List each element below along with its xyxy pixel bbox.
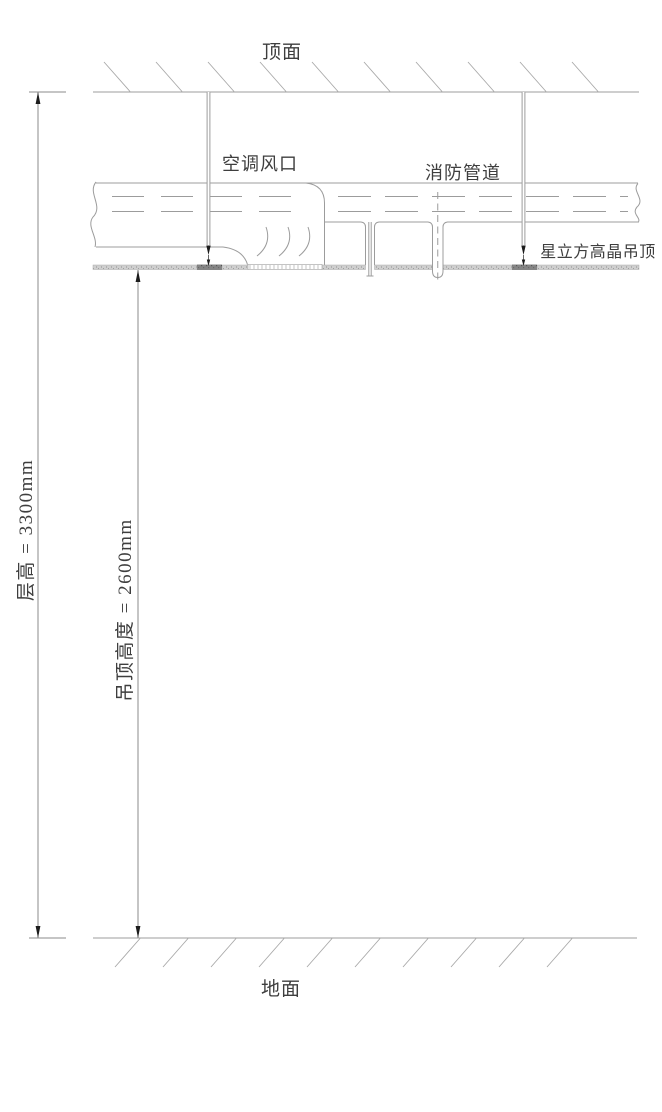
ac-vent-label: 空调风口 (222, 154, 298, 174)
dimension-floor-height: 层高 = 3300mm (15, 92, 66, 938)
ceiling-height-dimension-label: 吊顶高度 = 2600mm (114, 518, 136, 701)
hanger-wire (367, 222, 374, 276)
airflow-arcs (257, 227, 310, 256)
ceiling-section-drawing: 层高 = 3300mm 吊顶高度 = 2600mm 顶面 空调风口 消防管道 星… (0, 0, 662, 1112)
ceiling-clamp-right (512, 265, 537, 271)
hanger-rod-left (206, 92, 210, 266)
hanger-rod-right (521, 92, 525, 266)
structural-slab (93, 62, 639, 92)
ceiling-product-label: 星立方高晶吊顶 (540, 243, 656, 261)
pipe-break-symbol (635, 184, 640, 223)
sprinkler-drop (433, 192, 444, 281)
dimension-ceiling-height: 吊顶高度 = 2600mm (114, 270, 140, 938)
floor-hatching (115, 939, 572, 968)
floor-label: 地面 (261, 978, 301, 1000)
air-diffuser (223, 183, 325, 265)
suspended-ceiling (93, 265, 639, 271)
top-surface-label: 顶面 (262, 42, 302, 63)
duct-break-symbol (91, 182, 97, 247)
air-diffuser-grille (248, 265, 322, 270)
floor-height-dimension-label: 层高 = 3300mm (15, 459, 37, 601)
fire-pipe-label: 消防管道 (425, 163, 501, 183)
ceiling-clamp-left (197, 265, 222, 271)
ac-duct (91, 182, 638, 247)
slab-hatching (104, 62, 598, 92)
floor-line (93, 938, 637, 967)
